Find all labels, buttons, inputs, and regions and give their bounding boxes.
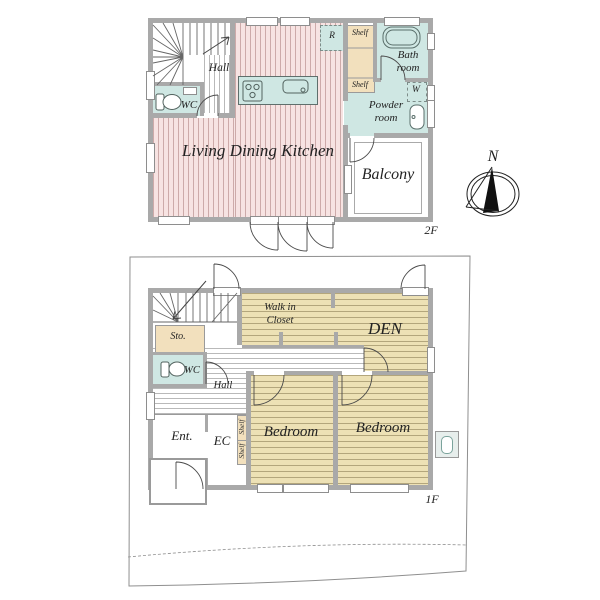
entrance-porch (149, 458, 207, 505)
corridor-floor (242, 348, 364, 371)
kitchen-counter (238, 76, 318, 105)
window-door (278, 216, 309, 225)
window-door (307, 216, 335, 225)
hall-2f-label: Hall (204, 62, 234, 76)
window (246, 17, 278, 26)
window (146, 71, 155, 100)
washer-label: W (408, 85, 424, 96)
wall (284, 371, 333, 375)
window (146, 392, 155, 420)
window (283, 484, 329, 493)
wall (153, 384, 207, 388)
window (427, 33, 435, 50)
window (427, 347, 435, 373)
wall (374, 133, 428, 138)
window (350, 484, 409, 493)
powder-room-label: Powder room (360, 99, 412, 125)
window (384, 17, 420, 26)
storage-label: Sto. (162, 331, 194, 343)
bedroom-left-label: Bedroom (251, 423, 331, 441)
water-heater-unit (435, 431, 459, 458)
floor-1f-label: 1F (421, 492, 443, 506)
ldk-floor-right (235, 23, 343, 217)
water-heater-tank (441, 436, 453, 454)
wall (153, 352, 207, 355)
den-label: DEN (362, 319, 408, 339)
wall (405, 78, 428, 82)
north-label: N (482, 147, 504, 166)
step-edge (153, 414, 246, 415)
shelf-top-label: Shelf (347, 28, 373, 38)
window (257, 484, 283, 493)
wall (333, 371, 338, 485)
wall (242, 345, 364, 348)
wall (338, 371, 342, 375)
wall (373, 23, 377, 80)
door-opening (213, 287, 241, 296)
wall (205, 415, 208, 432)
hall-1f-label: Hall (208, 380, 238, 393)
window-door (250, 216, 280, 225)
shelf-bottom-label: Shelf (347, 80, 373, 90)
shelf-upper-label: Shelf (237, 415, 247, 439)
wall (237, 293, 242, 345)
balcony-label: Balcony (350, 165, 426, 184)
ldk-label: Living Dining Kitchen (178, 138, 338, 164)
window (427, 100, 435, 128)
bath-room-label: Bath room (389, 49, 427, 75)
entrance-label: Ent. (162, 428, 202, 444)
compass-icon (466, 167, 519, 216)
bedroom-right-label: Bedroom (340, 419, 426, 437)
shelf-lower-label: Shelf (237, 439, 247, 463)
window (146, 143, 155, 173)
floor-2f-label: 2F (420, 223, 442, 237)
floor-plan-canvas: Hall WC Living Dining Kitchen R Shelf Sh… (0, 0, 600, 600)
door-opening (402, 287, 429, 296)
window (280, 17, 310, 26)
ldk-floor-left (153, 118, 235, 217)
wall (246, 371, 254, 375)
wall (153, 113, 197, 118)
window (158, 216, 190, 225)
wc-1f-label: WC (180, 365, 204, 378)
window (427, 85, 435, 101)
refrigerator-label: R (320, 31, 344, 42)
entrance-closet-label: EC (206, 433, 238, 449)
wall (373, 78, 381, 82)
wall (372, 371, 428, 375)
den-extension-floor (364, 345, 428, 371)
walk-in-closet-label: Walk in Closet (252, 302, 308, 327)
wc-2f-label: WC (176, 99, 202, 112)
wall (153, 82, 204, 86)
wc-small-window (183, 87, 197, 95)
